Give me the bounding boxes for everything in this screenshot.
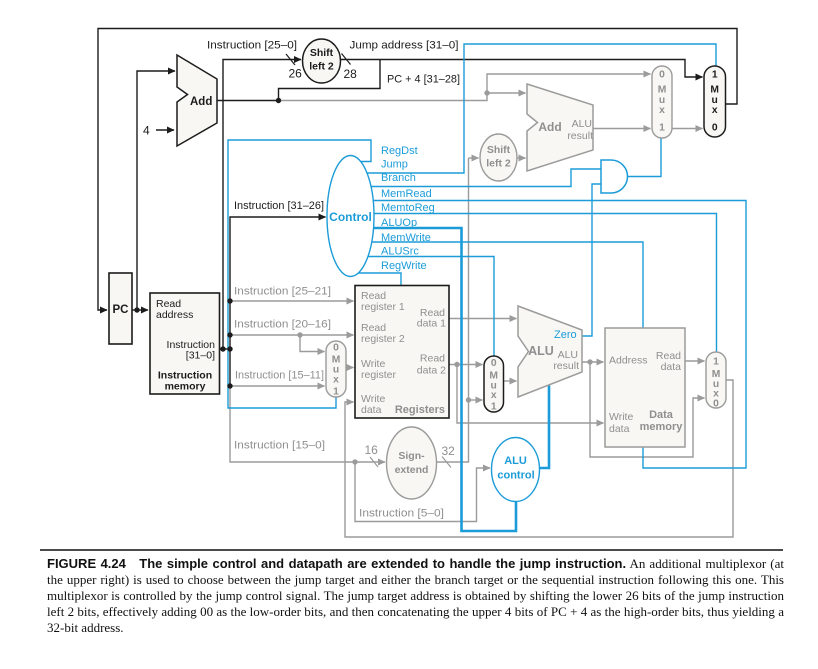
svg-text:left 2: left 2 xyxy=(309,61,334,73)
svg-text:Registers: Registers xyxy=(395,404,445,416)
svg-text:data 1: data 1 xyxy=(417,318,446,330)
svg-text:ALU: ALU xyxy=(528,344,554,358)
svg-text:Sign-: Sign- xyxy=(398,450,425,462)
svg-text:address: address xyxy=(156,309,193,321)
svg-text:ALU: ALU xyxy=(504,455,527,467)
svg-text:0: 0 xyxy=(713,399,719,410)
svg-text:Address: Address xyxy=(609,355,648,367)
svg-text:ALUSrc: ALUSrc xyxy=(381,246,419,258)
svg-text:data: data xyxy=(609,423,630,435)
svg-text:extend: extend xyxy=(395,464,429,476)
svg-text:Zero: Zero xyxy=(554,329,577,341)
svg-text:x: x xyxy=(333,375,339,386)
svg-text:x: x xyxy=(659,105,665,116)
svg-text:0: 0 xyxy=(659,70,665,81)
svg-text:Control: Control xyxy=(329,210,372,224)
svg-text:Jump: Jump xyxy=(381,159,408,171)
svg-text:Data: Data xyxy=(649,409,674,421)
svg-text:x: x xyxy=(491,390,497,401)
svg-text:Instruction [15–0]: Instruction [15–0] xyxy=(234,440,325,452)
svg-text:32: 32 xyxy=(442,444,456,458)
svg-text:Branch: Branch xyxy=(381,172,416,184)
svg-text:result: result xyxy=(567,130,593,142)
svg-text:28: 28 xyxy=(344,67,358,81)
svg-text:Read: Read xyxy=(420,353,445,365)
svg-text:Add: Add xyxy=(538,120,561,134)
svg-text:Instruction [15–11]: Instruction [15–11] xyxy=(235,370,324,382)
svg-text:MemRead: MemRead xyxy=(381,188,432,200)
svg-text:register 1: register 1 xyxy=(361,301,405,313)
svg-text:MemtoReg: MemtoReg xyxy=(381,202,435,214)
svg-text:Jump address [31–0]: Jump address [31–0] xyxy=(350,40,459,52)
svg-text:memory: memory xyxy=(165,381,206,393)
svg-text:memory: memory xyxy=(640,421,684,433)
svg-text:M: M xyxy=(658,85,667,96)
svg-text:MemWrite: MemWrite xyxy=(381,232,431,244)
svg-text:data: data xyxy=(361,404,382,416)
svg-text:Instruction [20–16]: Instruction [20–16] xyxy=(234,319,331,331)
svg-text:PC: PC xyxy=(113,304,129,316)
svg-text:1: 1 xyxy=(712,70,718,81)
svg-text:0: 0 xyxy=(712,123,718,134)
svg-text:RegDst: RegDst xyxy=(381,145,418,157)
svg-text:data: data xyxy=(661,361,682,373)
svg-text:Shift: Shift xyxy=(310,47,334,59)
svg-text:1: 1 xyxy=(659,123,665,134)
svg-text:Shift: Shift xyxy=(487,144,511,156)
svg-text:1: 1 xyxy=(491,402,497,413)
svg-text:control: control xyxy=(497,470,534,482)
svg-text:ALUOp: ALUOp xyxy=(381,217,417,229)
svg-text:0: 0 xyxy=(491,358,497,369)
svg-text:ALU: ALU xyxy=(572,118,592,130)
svg-text:Write: Write xyxy=(609,411,633,423)
svg-text:RegWrite: RegWrite xyxy=(381,260,427,272)
svg-text:16: 16 xyxy=(365,443,379,457)
svg-text:0: 0 xyxy=(333,343,339,354)
svg-text:x: x xyxy=(712,105,718,116)
svg-text:data 2: data 2 xyxy=(417,365,446,377)
svg-text:result: result xyxy=(553,360,579,372)
svg-text:M: M xyxy=(710,85,719,96)
svg-text:Instruction [5–0]: Instruction [5–0] xyxy=(359,508,444,520)
svg-text:4: 4 xyxy=(143,124,150,138)
svg-text:Add: Add xyxy=(190,96,212,108)
svg-text:Instruction [31–26]: Instruction [31–26] xyxy=(234,200,324,212)
svg-text:left 2: left 2 xyxy=(486,158,511,170)
svg-text:1: 1 xyxy=(333,387,339,398)
svg-text:Instruction [25–0]: Instruction [25–0] xyxy=(207,40,297,52)
svg-text:1: 1 xyxy=(713,357,719,368)
svg-text:[31–0]: [31–0] xyxy=(186,350,215,362)
svg-text:PC + 4 [31–28]: PC + 4 [31–28] xyxy=(387,74,460,86)
svg-text:register: register xyxy=(361,369,397,381)
svg-text:26: 26 xyxy=(289,67,303,81)
svg-text:register 2: register 2 xyxy=(361,333,405,345)
svg-text:Instruction [25–21]: Instruction [25–21] xyxy=(234,286,331,298)
